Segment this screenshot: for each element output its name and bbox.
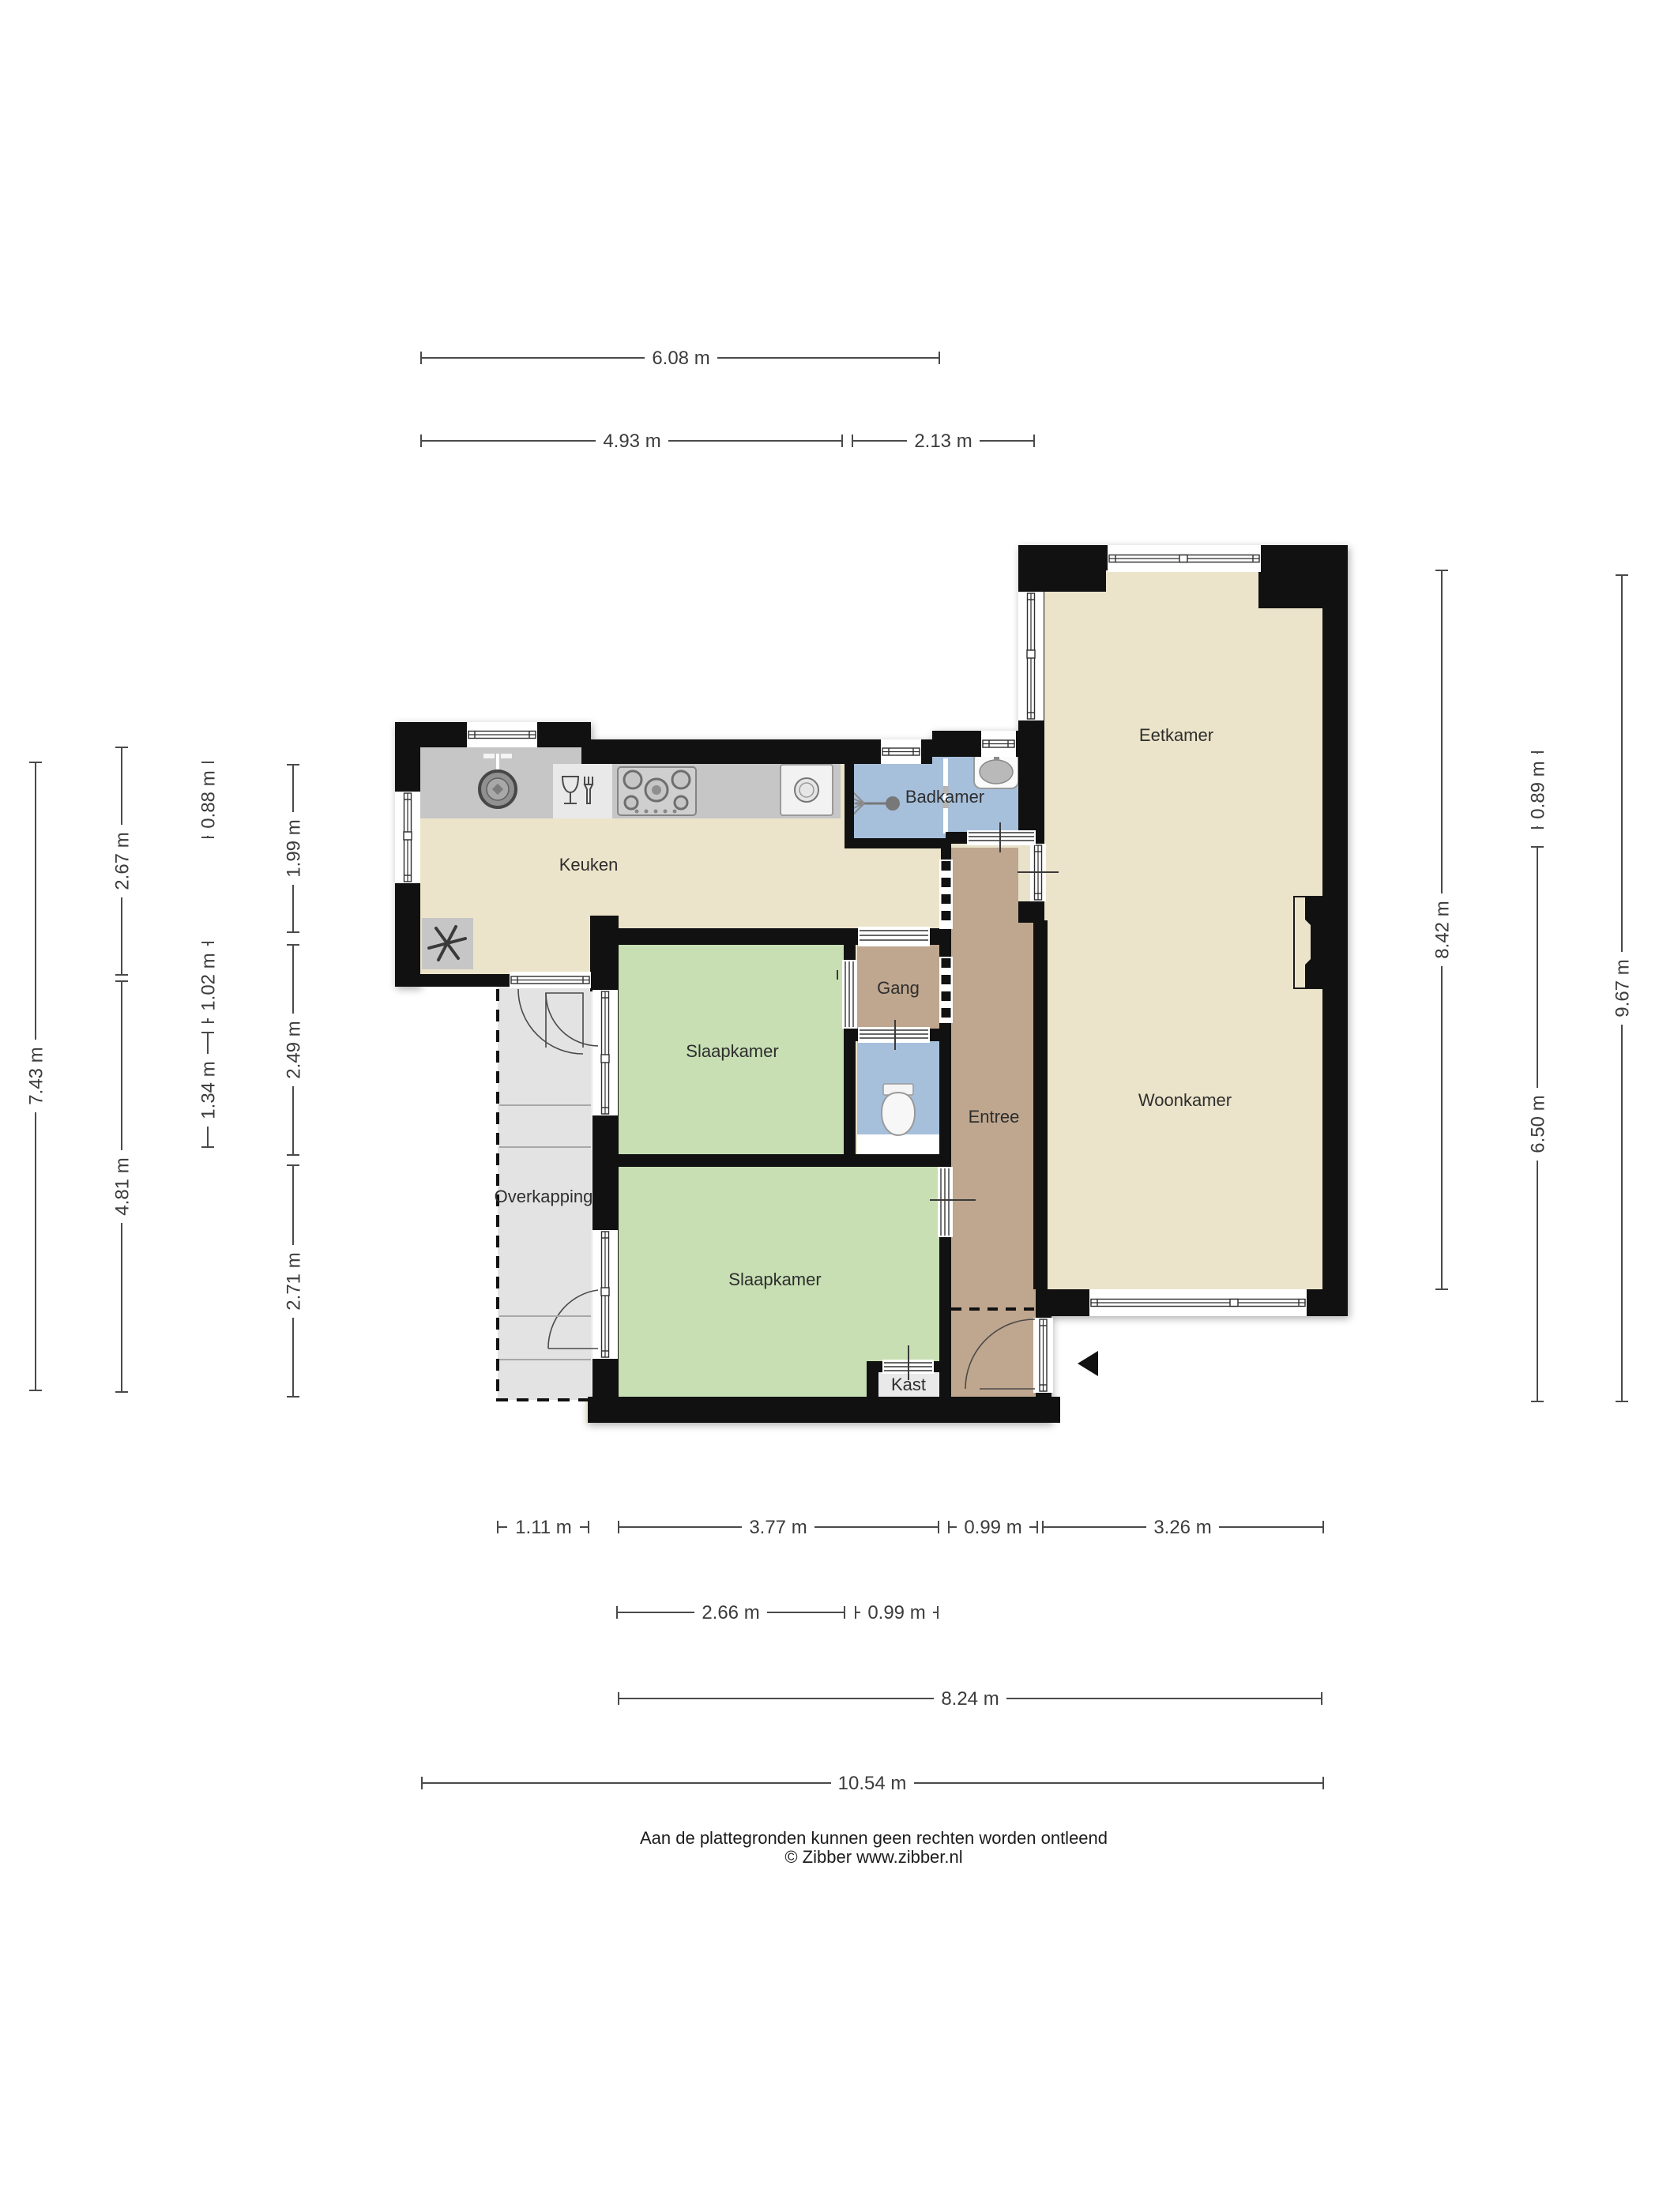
svg-text:3.26 m: 3.26 m xyxy=(1153,1517,1211,1538)
svg-text:8.24 m: 8.24 m xyxy=(941,1688,999,1710)
svg-text:2.67 m: 2.67 m xyxy=(112,832,134,890)
svg-text:1.34 m: 1.34 m xyxy=(198,1061,220,1119)
svg-text:2.13 m: 2.13 m xyxy=(914,431,972,452)
svg-text:10.54 m: 10.54 m xyxy=(838,1773,907,1794)
svg-text:Woonkamer: Woonkamer xyxy=(1138,1090,1232,1110)
svg-text:Slaapkamer: Slaapkamer xyxy=(728,1270,821,1289)
svg-text:Overkapping: Overkapping xyxy=(495,1187,593,1206)
svg-text:Slaapkamer: Slaapkamer xyxy=(686,1041,778,1061)
svg-text:6.50 m: 6.50 m xyxy=(1528,1095,1549,1153)
svg-text:1.02 m: 1.02 m xyxy=(198,953,220,1010)
svg-text:Aan de plattegronden kunnen ge: Aan de plattegronden kunnen geen rechten… xyxy=(640,1828,1108,1848)
svg-text:2.49 m: 2.49 m xyxy=(284,1021,305,1078)
svg-text:2.66 m: 2.66 m xyxy=(702,1602,759,1623)
svg-text:© Zibber www.zibber.nl: © Zibber www.zibber.nl xyxy=(784,1847,962,1867)
svg-text:0.99 m: 0.99 m xyxy=(867,1602,925,1623)
svg-text:Kast: Kast xyxy=(891,1375,926,1394)
svg-text:Badkamer: Badkamer xyxy=(905,787,984,807)
svg-text:1.11 m: 1.11 m xyxy=(515,1517,572,1538)
svg-text:6.08 m: 6.08 m xyxy=(652,348,709,369)
svg-text:9.67 m: 9.67 m xyxy=(1612,959,1634,1017)
svg-text:Eetkamer: Eetkamer xyxy=(1139,725,1213,745)
svg-text:3.77 m: 3.77 m xyxy=(749,1517,807,1538)
svg-text:Gang: Gang xyxy=(877,978,920,998)
svg-text:0.88 m: 0.88 m xyxy=(198,770,220,828)
svg-text:0.99 m: 0.99 m xyxy=(964,1517,1021,1538)
svg-text:Entree: Entree xyxy=(969,1107,1020,1127)
svg-text:4.93 m: 4.93 m xyxy=(603,431,660,452)
svg-text:2.71 m: 2.71 m xyxy=(284,1252,305,1310)
svg-text:1.99 m: 1.99 m xyxy=(284,819,305,877)
svg-text:4.81 m: 4.81 m xyxy=(112,1157,134,1215)
svg-text:7.43 m: 7.43 m xyxy=(26,1047,47,1104)
svg-text:Keuken: Keuken xyxy=(559,855,619,875)
svg-text:0.89 m: 0.89 m xyxy=(1528,761,1549,818)
svg-text:8.42 m: 8.42 m xyxy=(1432,901,1454,958)
